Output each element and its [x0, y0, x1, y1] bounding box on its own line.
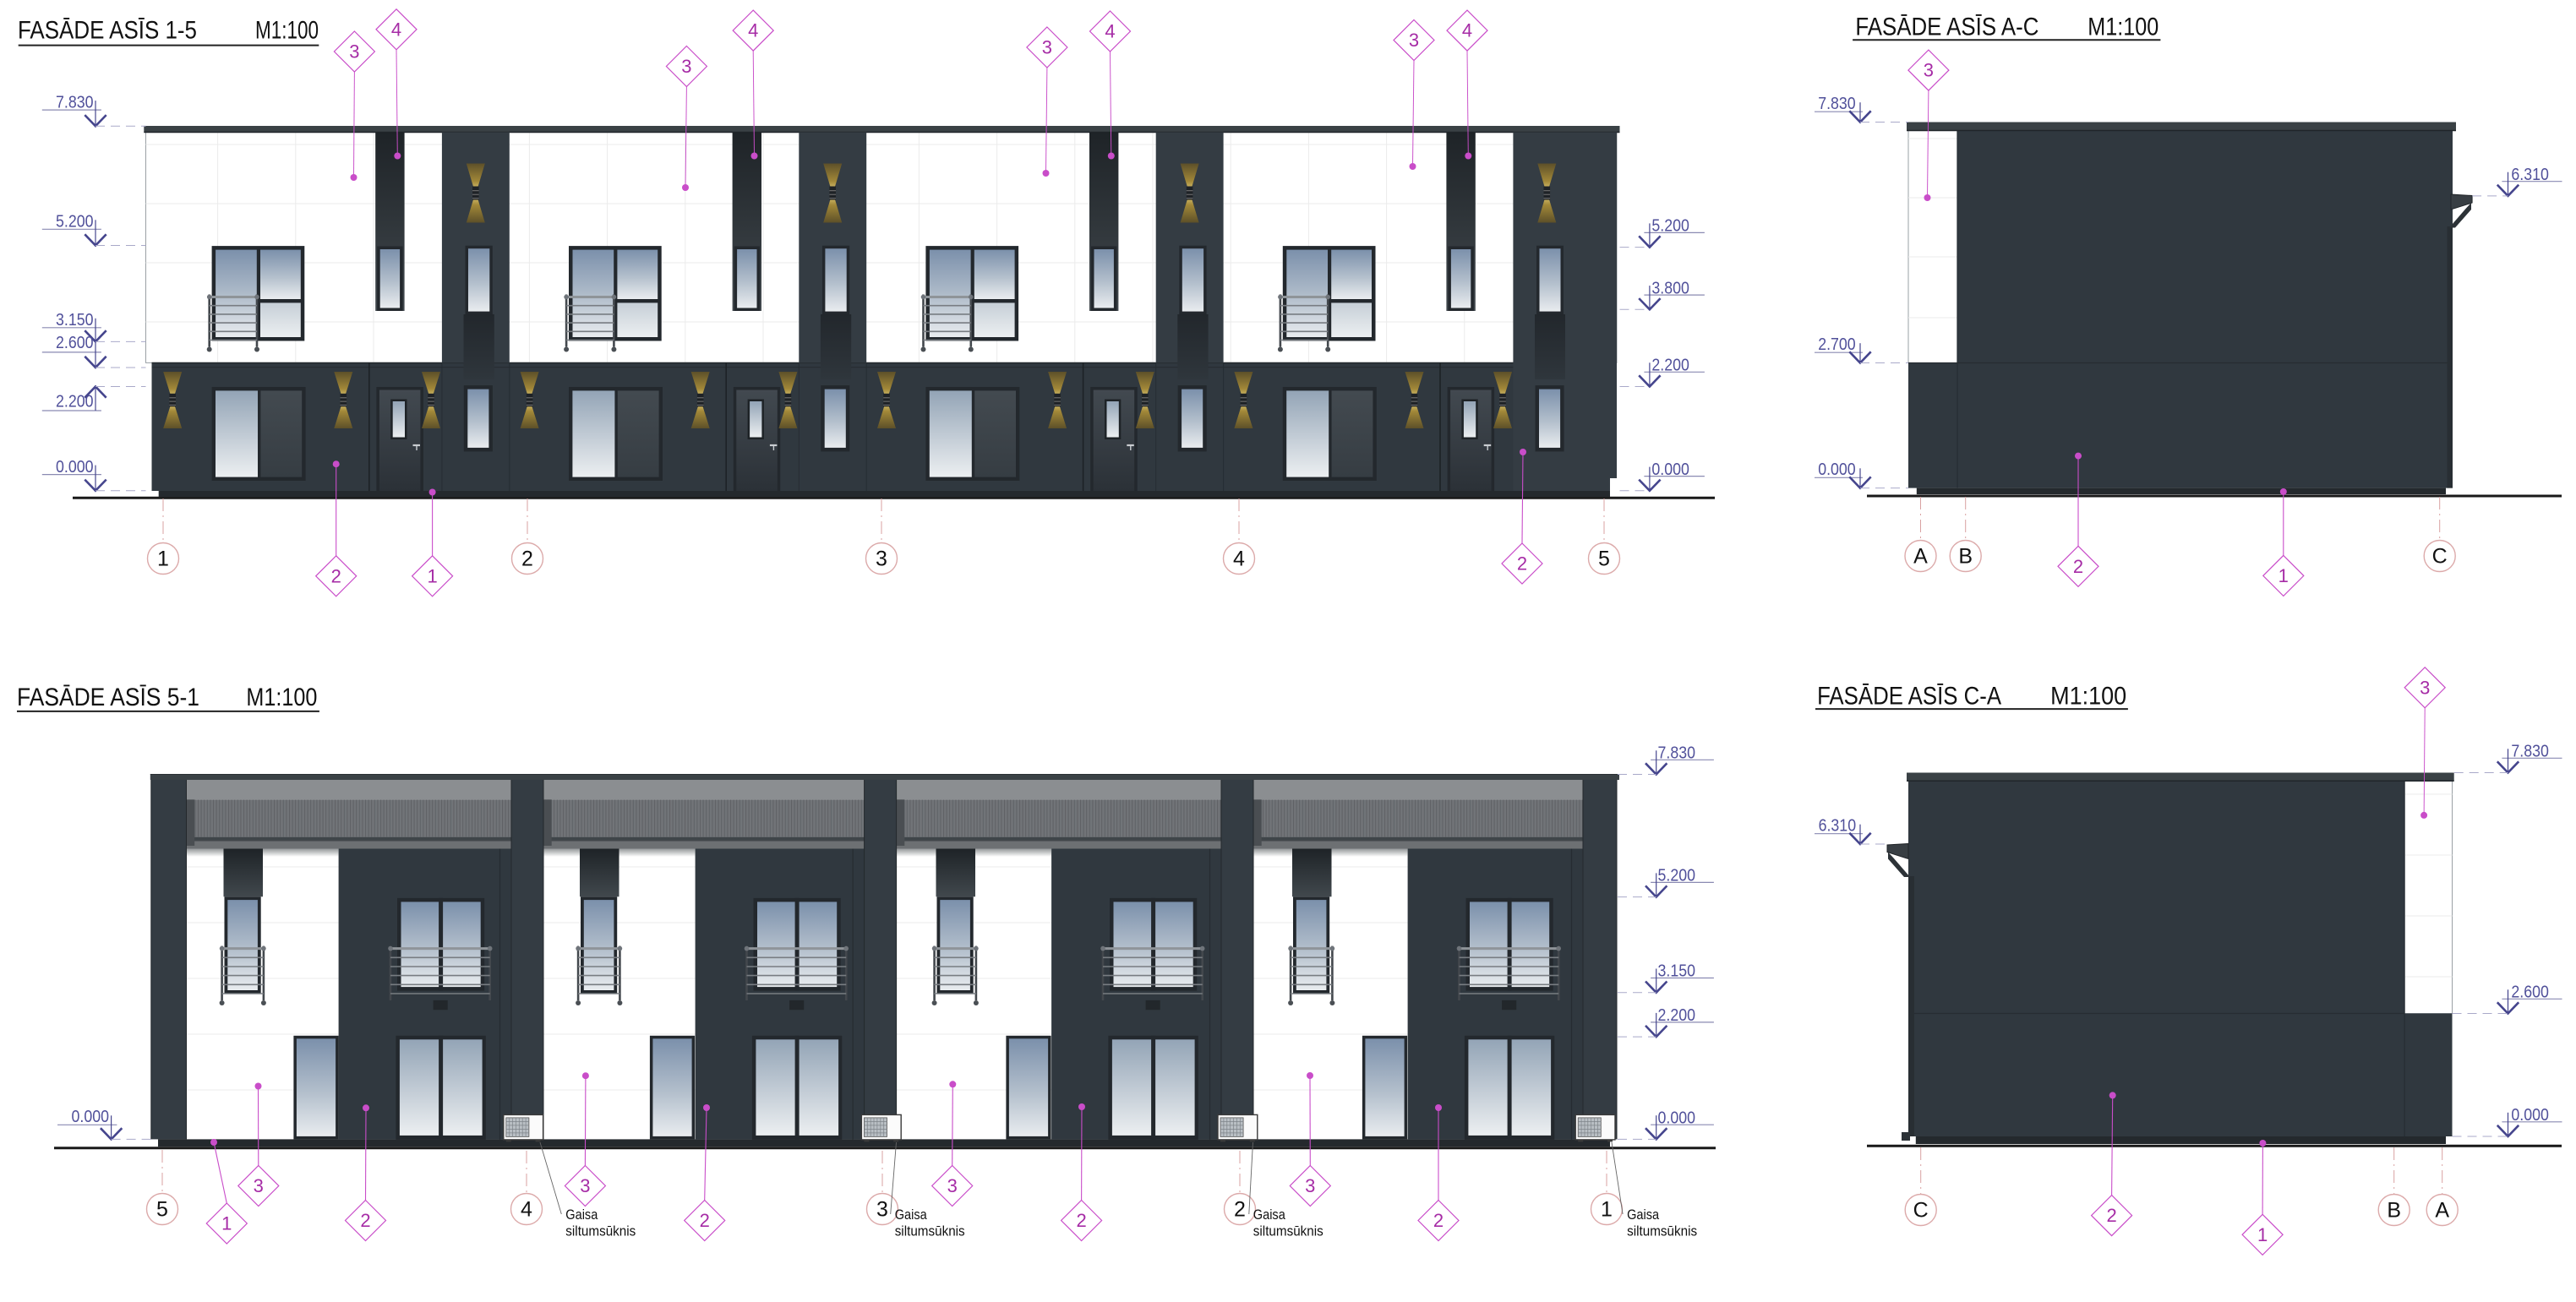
svg-text:2: 2: [2073, 556, 2083, 577]
svg-text:4: 4: [748, 20, 758, 41]
svg-text:3: 3: [349, 41, 359, 63]
svg-text:2.600: 2.600: [56, 334, 94, 352]
svg-text:B: B: [2387, 1199, 2401, 1223]
svg-text:1: 1: [157, 547, 169, 571]
svg-text:FASĀDE ASĪS A-C: FASĀDE ASĪS A-C: [1855, 13, 2038, 41]
svg-text:3: 3: [876, 1198, 888, 1222]
svg-text:7.830: 7.830: [56, 93, 94, 112]
svg-text:4: 4: [521, 1198, 532, 1222]
svg-text:Gaisa: Gaisa: [1253, 1207, 1285, 1223]
svg-text:5: 5: [1598, 547, 1610, 571]
svg-text:M1:100: M1:100: [255, 16, 319, 44]
svg-text:FASĀDE ASĪS C-A: FASĀDE ASĪS C-A: [1817, 682, 2001, 710]
svg-text:2: 2: [700, 1210, 710, 1231]
svg-text:C: C: [1913, 1199, 1929, 1223]
svg-text:Gaisa: Gaisa: [1627, 1207, 1659, 1223]
svg-text:3: 3: [1305, 1175, 1315, 1196]
svg-text:4: 4: [1105, 21, 1115, 42]
svg-text:4: 4: [1233, 547, 1245, 571]
svg-text:4: 4: [391, 19, 401, 40]
svg-text:siltumsūknis: siltumsūknis: [1627, 1223, 1697, 1239]
svg-text:1: 1: [2279, 565, 2289, 586]
svg-text:3: 3: [580, 1175, 590, 1196]
svg-text:1: 1: [221, 1213, 232, 1234]
svg-text:3: 3: [876, 547, 887, 571]
svg-text:A: A: [1913, 545, 1928, 569]
svg-text:M1:100: M1:100: [246, 684, 317, 711]
svg-text:2: 2: [1076, 1210, 1086, 1231]
svg-text:A: A: [2435, 1199, 2449, 1223]
svg-text:FASĀDE ASĪS 1-5: FASĀDE ASĪS 1-5: [18, 16, 197, 44]
svg-text:FASĀDE ASĪS 5-1: FASĀDE ASĪS 5-1: [17, 684, 199, 711]
svg-text:3: 3: [947, 1175, 958, 1196]
svg-text:5.200: 5.200: [56, 213, 94, 232]
svg-text:M1:100: M1:100: [2050, 682, 2126, 710]
svg-text:1: 1: [427, 565, 437, 586]
svg-text:siltumsūknis: siltumsūknis: [1253, 1223, 1323, 1239]
svg-text:2: 2: [1433, 1210, 1444, 1231]
svg-text:C: C: [2432, 545, 2448, 569]
svg-text:2: 2: [2106, 1205, 2116, 1226]
svg-text:3: 3: [254, 1175, 264, 1196]
svg-text:2: 2: [1517, 553, 1527, 575]
svg-text:siltumsūknis: siltumsūknis: [895, 1223, 965, 1239]
svg-text:3: 3: [681, 56, 691, 77]
svg-text:3.150: 3.150: [56, 311, 94, 330]
svg-text:B: B: [1958, 545, 1973, 569]
svg-text:2: 2: [1234, 1198, 1246, 1222]
svg-text:2: 2: [331, 565, 341, 586]
svg-text:3: 3: [1042, 37, 1052, 58]
svg-text:1: 1: [1601, 1198, 1613, 1222]
svg-text:5: 5: [156, 1198, 168, 1222]
svg-text:2: 2: [521, 547, 533, 571]
svg-text:4: 4: [1462, 20, 1472, 41]
svg-text:3: 3: [1409, 30, 1419, 51]
svg-text:1: 1: [2257, 1224, 2268, 1245]
svg-text:Gaisa: Gaisa: [565, 1207, 598, 1223]
svg-text:M1:100: M1:100: [2088, 13, 2158, 41]
svg-text:3: 3: [1924, 60, 1934, 81]
svg-text:Gaisa: Gaisa: [895, 1207, 927, 1223]
svg-text:siltumsūknis: siltumsūknis: [565, 1223, 636, 1239]
svg-text:3: 3: [2420, 677, 2430, 698]
svg-text:2: 2: [360, 1210, 370, 1231]
svg-text:0.000: 0.000: [56, 458, 94, 477]
svg-text:0.000: 0.000: [72, 1108, 110, 1126]
